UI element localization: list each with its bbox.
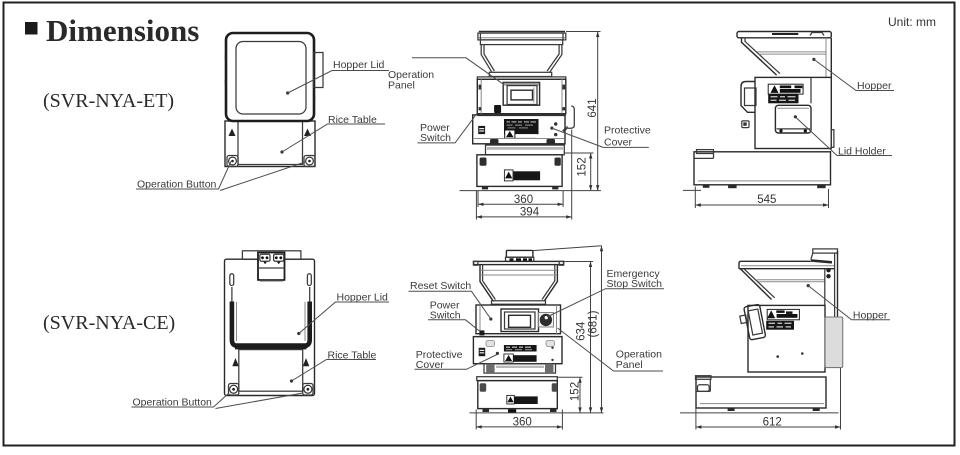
svg-text:Cover: Cover	[604, 136, 633, 148]
svg-text:Protective: Protective	[604, 125, 651, 137]
svg-text:612: 612	[763, 416, 782, 428]
svg-text:(SVR-NYA-ET): (SVR-NYA-ET)	[43, 90, 174, 112]
svg-text:Lid Holder: Lid Holder	[838, 145, 886, 157]
svg-text:(681): (681)	[587, 310, 599, 337]
svg-text:Hopper: Hopper	[853, 310, 888, 322]
svg-text:(SVR-NYA-CE): (SVR-NYA-CE)	[43, 312, 175, 334]
svg-text:Hopper Lid: Hopper Lid	[337, 292, 389, 304]
svg-text:Panel: Panel	[388, 80, 415, 92]
svg-text:152: 152	[570, 382, 582, 401]
svg-text:Panel: Panel	[616, 359, 643, 371]
svg-text:545: 545	[757, 194, 776, 206]
svg-text:Rice Table: Rice Table	[328, 114, 377, 126]
svg-text:Operation Button: Operation Button	[137, 179, 217, 191]
svg-text:152: 152	[577, 157, 589, 176]
svg-text:394: 394	[520, 207, 540, 219]
svg-text:Rice Table: Rice Table	[328, 349, 377, 361]
svg-text:Hopper Lid: Hopper Lid	[333, 59, 385, 71]
svg-text:Hopper: Hopper	[857, 80, 892, 92]
svg-text:360: 360	[513, 416, 532, 428]
svg-text:641: 641	[587, 98, 599, 117]
svg-text:Reset Switch: Reset Switch	[410, 280, 471, 292]
svg-text:Dimensions: Dimensions	[46, 13, 199, 48]
svg-text:Switch: Switch	[420, 132, 451, 144]
svg-text:Operation Button: Operation Button	[133, 397, 213, 409]
svg-text:634: 634	[575, 321, 587, 341]
svg-text:Unit: mm: Unit: mm	[888, 15, 936, 29]
svg-text:360: 360	[514, 194, 533, 206]
